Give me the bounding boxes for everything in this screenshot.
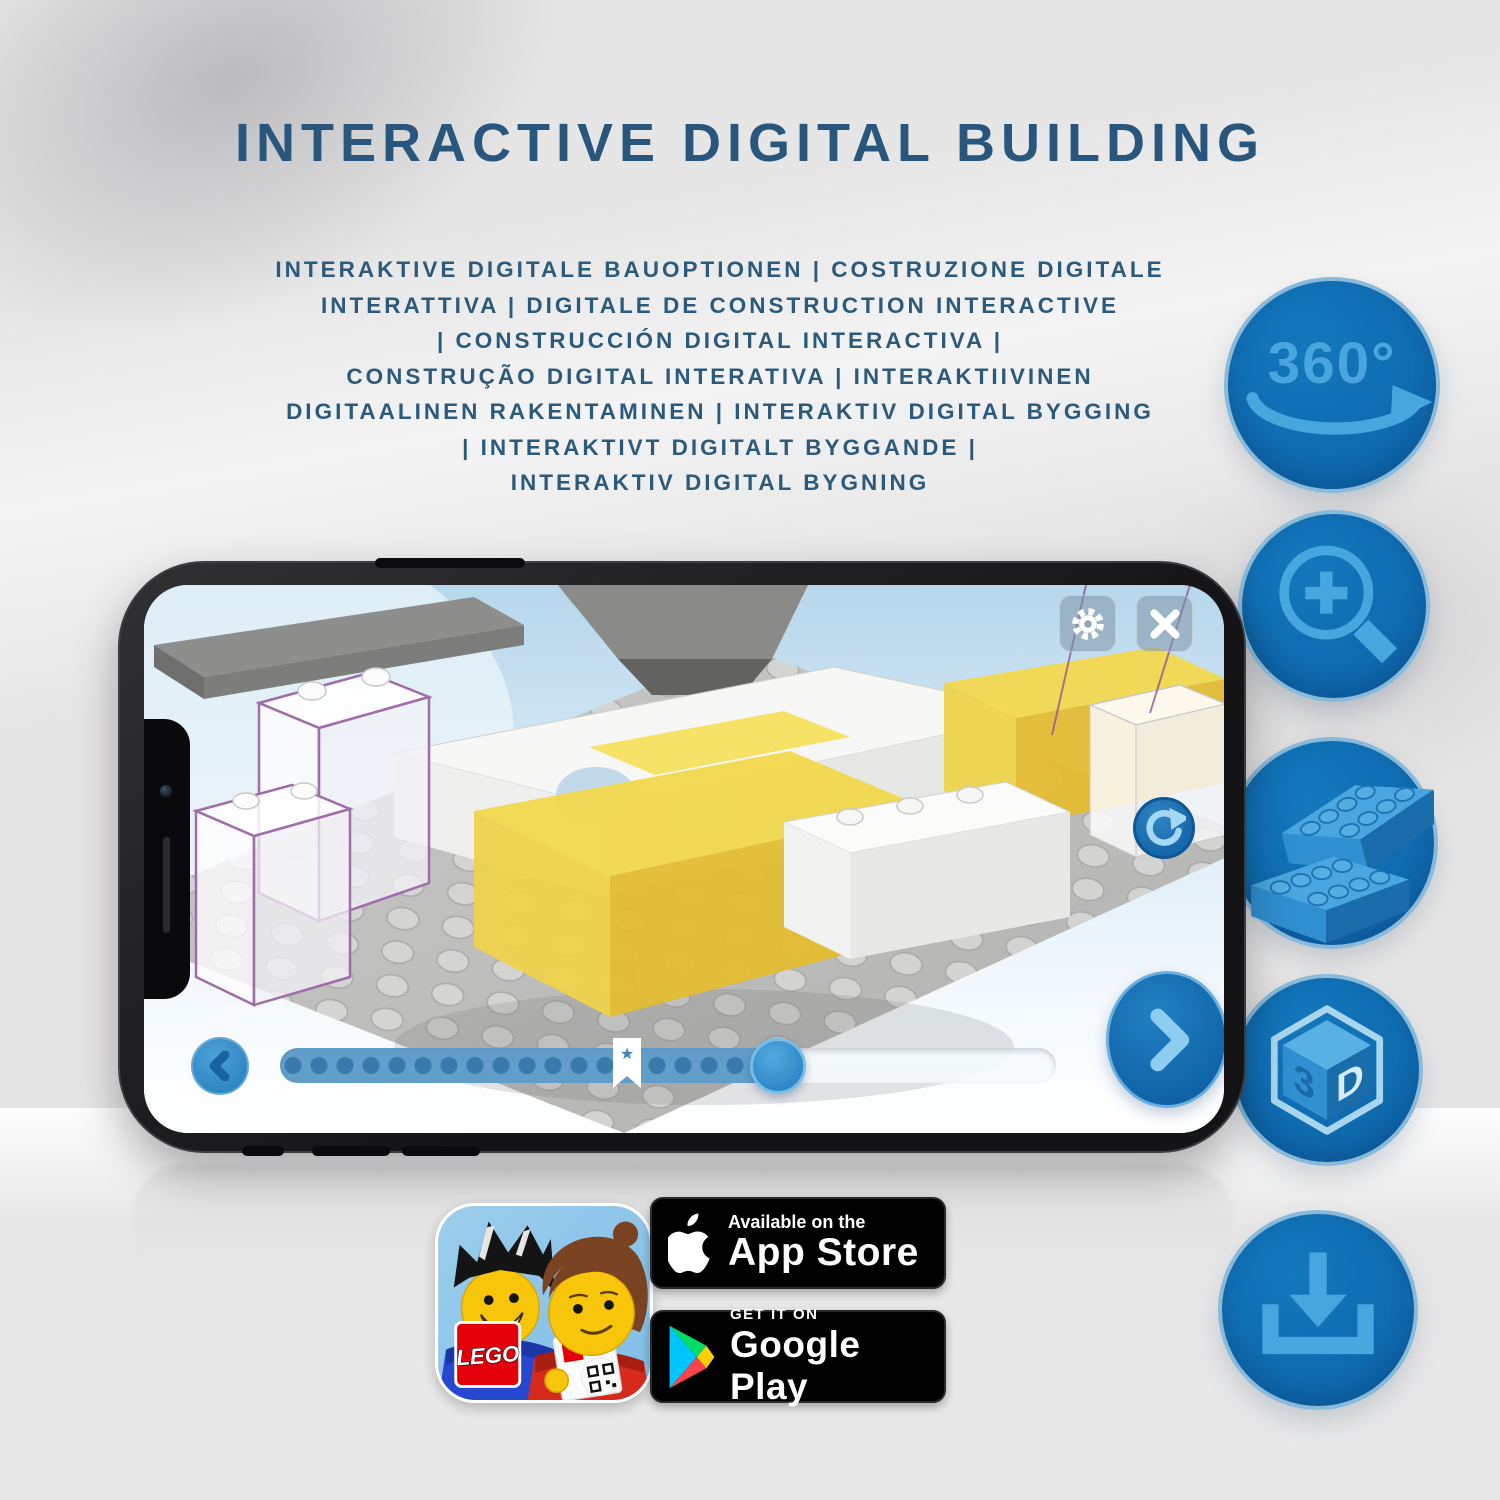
google-play-name: Google Play (730, 1324, 928, 1408)
feature-brick-badge (1226, 737, 1438, 949)
phone-volume-button (312, 1146, 390, 1156)
subtitle-line: INTERAKTIVE DIGITALE BAUOPTIONEN | COSTR… (120, 252, 1320, 288)
settings-button[interactable] (1059, 595, 1116, 652)
subtitle-line: | CONSTRUCCIÓN DIGITAL INTERACTIVA | (120, 323, 1320, 359)
360-rotation-icon: 360° (1228, 281, 1436, 489)
google-play-icon (668, 1325, 716, 1389)
progress-handle[interactable] (750, 1038, 806, 1094)
front-camera (160, 785, 172, 797)
phone-notch (144, 719, 190, 999)
chevron-right-icon (1136, 1005, 1198, 1075)
lego-app-icon-art: LEGO (438, 1206, 650, 1400)
phone-mockup: ★ (118, 561, 1246, 1153)
build-progress-bar[interactable]: ★ (280, 1048, 1056, 1083)
feature-zoom-badge (1238, 510, 1430, 702)
close-button[interactable] (1136, 595, 1193, 652)
feature-download-badge (1218, 1210, 1418, 1410)
lego-logo-text: LEGO (455, 1341, 520, 1370)
subtitle-line: INTERAKTIV DIGITAL BYGNING (120, 465, 1320, 501)
phone-mute-switch (242, 1146, 284, 1156)
google-play-tagline: GET IT ON (730, 1306, 928, 1324)
app-store-tagline: Available on the (728, 1212, 919, 1232)
app-store-badge[interactable]: Available on the App Store (650, 1197, 946, 1289)
subtitle-line: INTERATTIVA | DIGITALE DE CONSTRUCTION I… (120, 288, 1320, 324)
lego-app-icon[interactable]: LEGO (435, 1203, 653, 1403)
feature-360-badge: 360° (1224, 277, 1440, 493)
lego-logo: LEGO (455, 1322, 520, 1386)
subtitle-line: CONSTRUÇÃO DIGITAL INTERATIVA | INTERAKT… (120, 359, 1320, 395)
apple-icon (668, 1211, 714, 1275)
page-title: INTERACTIVE DIGITAL BUILDING (0, 112, 1500, 174)
rotate-view-button[interactable] (1133, 797, 1195, 859)
lego-brick-icon (1230, 741, 1434, 945)
360-label: 360° (1268, 331, 1397, 396)
feature-3d-badge: 3 D (1231, 974, 1423, 1166)
app-store-name: App Store (728, 1232, 919, 1274)
lego-marketing-image: INTERACTIVE DIGITAL BUILDING INTERAKTIVE… (0, 0, 1500, 1500)
chevron-left-icon (205, 1051, 235, 1081)
subtitle-line: DIGITAALINEN RAKENTAMINEN | INTERAKTIV D… (120, 394, 1320, 430)
earpiece-speaker (163, 837, 170, 933)
3d-cube-icon: 3 D (1235, 978, 1419, 1162)
google-play-badge[interactable]: GET IT ON Google Play (650, 1310, 946, 1403)
phone-volume-button (402, 1146, 480, 1156)
rotate-icon (1142, 806, 1186, 850)
next-step-button[interactable] (1106, 971, 1224, 1108)
star-icon: ★ (620, 1046, 634, 1063)
previous-step-button[interactable] (191, 1037, 249, 1095)
download-icon (1222, 1214, 1414, 1406)
gear-icon (1068, 604, 1108, 644)
phone-screen: ★ (144, 585, 1224, 1133)
progress-fill (280, 1048, 778, 1083)
subtitle-block: INTERAKTIVE DIGITALE BAUOPTIONEN | COSTR… (120, 252, 1320, 501)
close-icon (1145, 604, 1185, 644)
subtitle-line: | INTERAKTIVT DIGITALT BYGGANDE | (120, 430, 1320, 466)
zoom-in-icon (1242, 514, 1426, 698)
phone-power-button (375, 558, 525, 568)
